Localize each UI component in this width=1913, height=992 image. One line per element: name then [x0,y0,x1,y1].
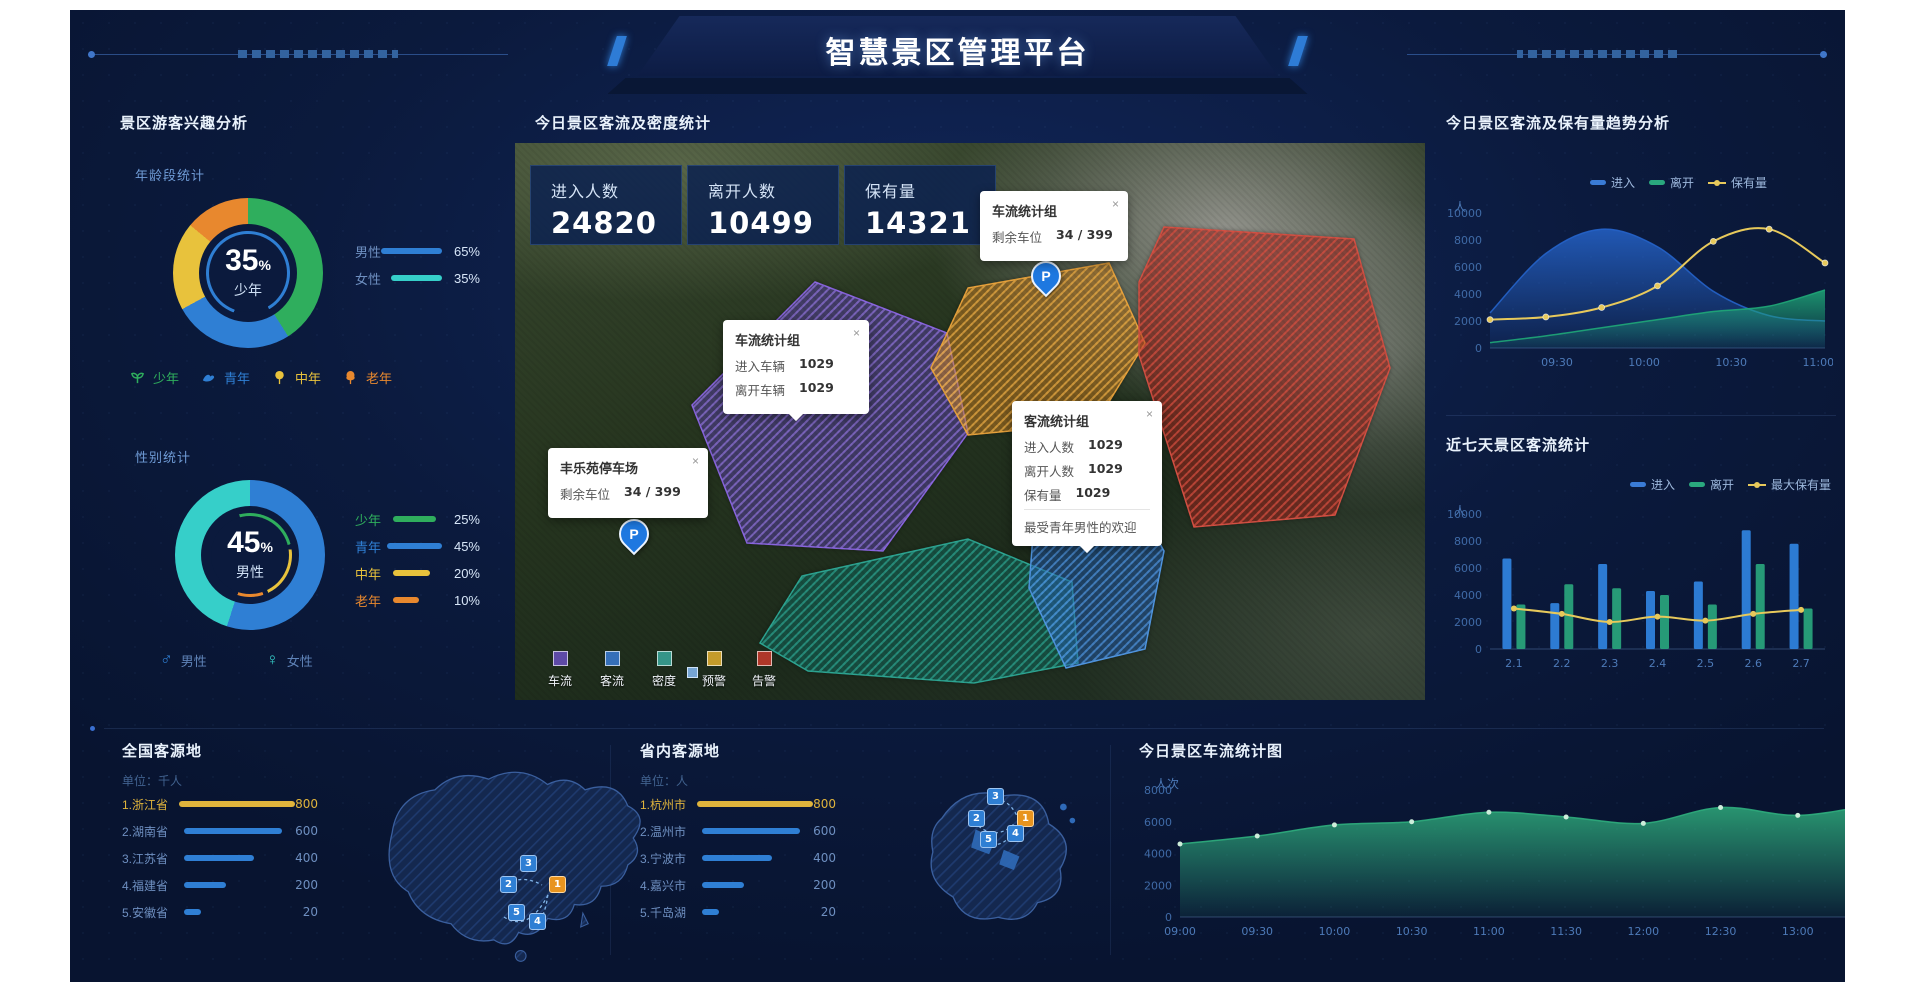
svg-text:11:00: 11:00 [1473,925,1505,938]
svg-text:12:30: 12:30 [1705,925,1737,938]
popup-visitor-stats: × 客流统计组 进入人数1029 离开人数1029 保有量1029 最受青年男性… [1012,401,1162,546]
male-icon: ♂ [160,650,173,670]
close-icon[interactable]: × [853,327,860,339]
map-legend-alarm[interactable]: 告警 [741,651,787,689]
national-marker-5[interactable]: 5 [508,904,525,921]
week-legend-max-holding[interactable]: 最大保有量 [1748,476,1831,493]
map-legend-visitor[interactable]: 客流 [589,651,635,689]
scenic-map[interactable]: 进入人数 24820 离开人数 10499 保有量 14321 × 车流统计组 … [515,143,1425,700]
svg-text:4000: 4000 [1454,589,1482,602]
national-marker-2[interactable]: 2 [500,876,517,893]
origin-row: 3.宁波市400 [640,850,836,866]
age-legend: 男性 65% 女性 35% [355,242,480,296]
close-icon[interactable]: × [1112,198,1119,210]
week-legend: 进入 离开 最大保有量 [1630,476,1831,493]
gender-legend-row-shaonian[interactable]: 少年 25% [355,510,480,528]
svg-text:2.1: 2.1 [1505,657,1523,670]
traffic-chart-title: 今日景区车流统计图 [1139,740,1283,761]
week-bar-chart: 02000400060008000100002.12.22.32.42.52.6… [1438,498,1833,688]
female-icon-item: ♀ 女性 [266,650,313,670]
density-swatch [657,651,672,666]
province-marker-2[interactable]: 2 [968,810,985,827]
stat-card-holding: 保有量 14321 [844,165,996,245]
svg-text:11:00: 11:00 [1802,356,1833,369]
svg-text:09:30: 09:30 [1541,356,1573,369]
origin-row: 5.安徽省20 [122,904,318,920]
left-panel-title: 景区游客兴趣分析 [120,112,248,133]
svg-text:2.7: 2.7 [1792,657,1810,670]
national-marker-1[interactable]: 1 [549,876,566,893]
national-origin-unit: 单位：千人 [122,772,182,789]
map-panel-title: 今日景区客流及密度统计 [535,112,711,133]
svg-text:0: 0 [1475,643,1482,656]
vehicle-flow-swatch [553,651,568,666]
trend-legend: 进入 离开 保有量 [1590,174,1767,191]
gender-legend-row-laonian[interactable]: 老年 10% [355,591,480,609]
national-origin-list: 1.浙江省800 2.湖南省600 3.江苏省400 4.福建省200 5.安徽… [122,796,318,931]
popup-vehicle-stats: × 车流统计组 进入车辆1029 离开车辆1029 [723,320,869,414]
gender-subtitle: 性别统计 [135,447,191,466]
svg-text:10:30: 10:30 [1396,925,1428,938]
svg-text:2.5: 2.5 [1697,657,1715,670]
national-marker-4[interactable]: 4 [529,913,546,930]
map-legend-density[interactable]: 密度 [641,651,687,689]
origin-row: 1.浙江省800 [122,796,318,812]
traffic-area-chart: 0200040006000800009:0009:3010:0010:3011:… [1125,765,1845,950]
trend-legend-holding[interactable]: 保有量 [1708,174,1767,191]
header-band [608,78,1308,94]
province-marker-4[interactable]: 4 [1007,825,1024,842]
national-origin-title: 全国客源地 [122,740,202,761]
age-legend-row-male[interactable]: 男性 65% [355,242,480,260]
svg-text:4000: 4000 [1144,848,1172,861]
lollipop-tree-icon [272,370,287,385]
origin-row: 4.福建省200 [122,877,318,893]
svg-text:2.6: 2.6 [1744,657,1762,670]
warning-swatch [707,651,722,666]
zone-density[interactable] [760,539,1078,683]
svg-text:0: 0 [1165,911,1172,924]
province-origin-unit: 单位：人 [640,772,688,789]
trend-legend-leave[interactable]: 离开 [1649,174,1694,191]
trend-area-chart: 020004000600080001000009:3010:0010:3011:… [1438,195,1833,370]
map-legend-warning[interactable]: 预警 [691,651,737,689]
male-icon-item: ♂ 男性 [160,650,207,670]
page-title: 智慧景区管理平台 [70,28,1845,72]
sprout-icon [130,370,145,385]
age-icon-item-qingnian: 青年 [201,368,250,387]
svg-text:4000: 4000 [1454,288,1482,301]
origin-row: 4.嘉兴市200 [640,877,836,893]
svg-text:2.2: 2.2 [1553,657,1571,670]
svg-text:2.3: 2.3 [1601,657,1619,670]
svg-text:6000: 6000 [1454,562,1482,575]
dashboard: 智慧景区管理平台 景区游客兴趣分析 年龄段统计 35% 少年 男性 65% 女性… [70,10,1845,982]
gender-legend-row-zhongnian[interactable]: 中年 20% [355,564,480,582]
map-legend-vehicle[interactable]: 车流 [537,651,583,689]
bird-icon [201,370,216,385]
svg-text:2000: 2000 [1454,616,1482,629]
age-icon-legend: 少年 青年 中年 老年 [130,368,460,387]
female-pct-bar [391,275,442,281]
gender-age-legend: 少年 25% 青年 45% 中年 20% 老年 10% [355,510,480,618]
age-icon-item-laonian: 老年 [343,368,392,387]
gender-legend-row-qingnian[interactable]: 青年 45% [355,537,480,555]
origin-row: 2.温州市600 [640,823,836,839]
svg-text:6000: 6000 [1144,816,1172,829]
age-center-label: 少年 [234,280,262,300]
svg-text:12:00: 12:00 [1627,925,1659,938]
male-pct-bar [381,248,442,254]
svg-text:2000: 2000 [1144,879,1172,892]
fengle-parking-pin[interactable]: P [613,513,655,555]
female-icon: ♀ [266,650,279,670]
svg-text:0: 0 [1475,342,1482,355]
svg-text:8000: 8000 [1454,535,1482,548]
province-origin-title: 省内客源地 [640,740,720,761]
origin-row: 2.湖南省600 [122,823,318,839]
age-icon-item-shaonian: 少年 [130,368,179,387]
origin-row: 3.江苏省400 [122,850,318,866]
close-icon[interactable]: × [1146,408,1153,420]
stat-card-enter: 进入人数 24820 [530,165,682,245]
province-origin-list: 1.杭州市800 2.温州市600 3.宁波市400 4.嘉兴市200 5.千岛… [640,796,836,931]
svg-text:09:00: 09:00 [1164,925,1196,938]
origin-row: 1.杭州市800 [640,796,836,812]
province-marker-3[interactable]: 3 [987,788,1004,805]
province-marker-5[interactable]: 5 [980,831,997,848]
week-panel-title: 近七天景区客流统计 [1446,434,1590,455]
svg-text:6000: 6000 [1454,261,1482,274]
alarm-swatch [757,651,772,666]
svg-text:13:00: 13:00 [1782,925,1814,938]
gender-donut-chart: 45% 男性 [175,480,325,630]
national-marker-3[interactable]: 3 [520,855,537,872]
age-legend-row-female[interactable]: 女性 35% [355,269,480,287]
popup-parking-group: × 车流统计组 剩余车位34 / 399 [980,191,1128,261]
svg-text:10:00: 10:00 [1628,356,1660,369]
svg-text:8000: 8000 [1454,234,1482,247]
age-icon-item-zhongnian: 中年 [272,368,321,387]
svg-text:2.4: 2.4 [1649,657,1667,670]
svg-text:8000: 8000 [1144,784,1172,797]
week-legend-enter[interactable]: 进入 [1630,476,1675,493]
svg-text:10000: 10000 [1447,508,1482,521]
trend-legend-enter[interactable]: 进入 [1590,174,1635,191]
week-legend-leave[interactable]: 离开 [1689,476,1734,493]
visitor-flow-swatch [605,651,620,666]
svg-text:2000: 2000 [1454,315,1482,328]
svg-text:10:30: 10:30 [1715,356,1747,369]
age-subtitle: 年龄段统计 [135,165,205,184]
stat-card-leave: 离开人数 10499 [687,165,839,245]
popup-fengle-parking: × 丰乐苑停车场 剩余车位34 / 399 [548,448,708,518]
parking-pin[interactable]: P [1025,255,1067,297]
zone-alarm[interactable] [1139,227,1390,527]
svg-text:10:00: 10:00 [1319,925,1351,938]
svg-text:11:30: 11:30 [1550,925,1582,938]
age-center-value: 35 [225,244,258,277]
gender-center-label: 男性 [236,562,264,582]
round-tree-icon [343,370,358,385]
svg-text:10000: 10000 [1447,207,1482,220]
gender-center-value: 45 [227,526,260,559]
age-donut-chart: 35% 少年 [173,198,323,348]
close-icon[interactable]: × [692,455,699,467]
trend-panel-title: 今日景区客流及保有量趋势分析 [1446,112,1670,133]
origin-row: 5.千岛湖20 [640,904,836,920]
svg-text:09:30: 09:30 [1241,925,1273,938]
